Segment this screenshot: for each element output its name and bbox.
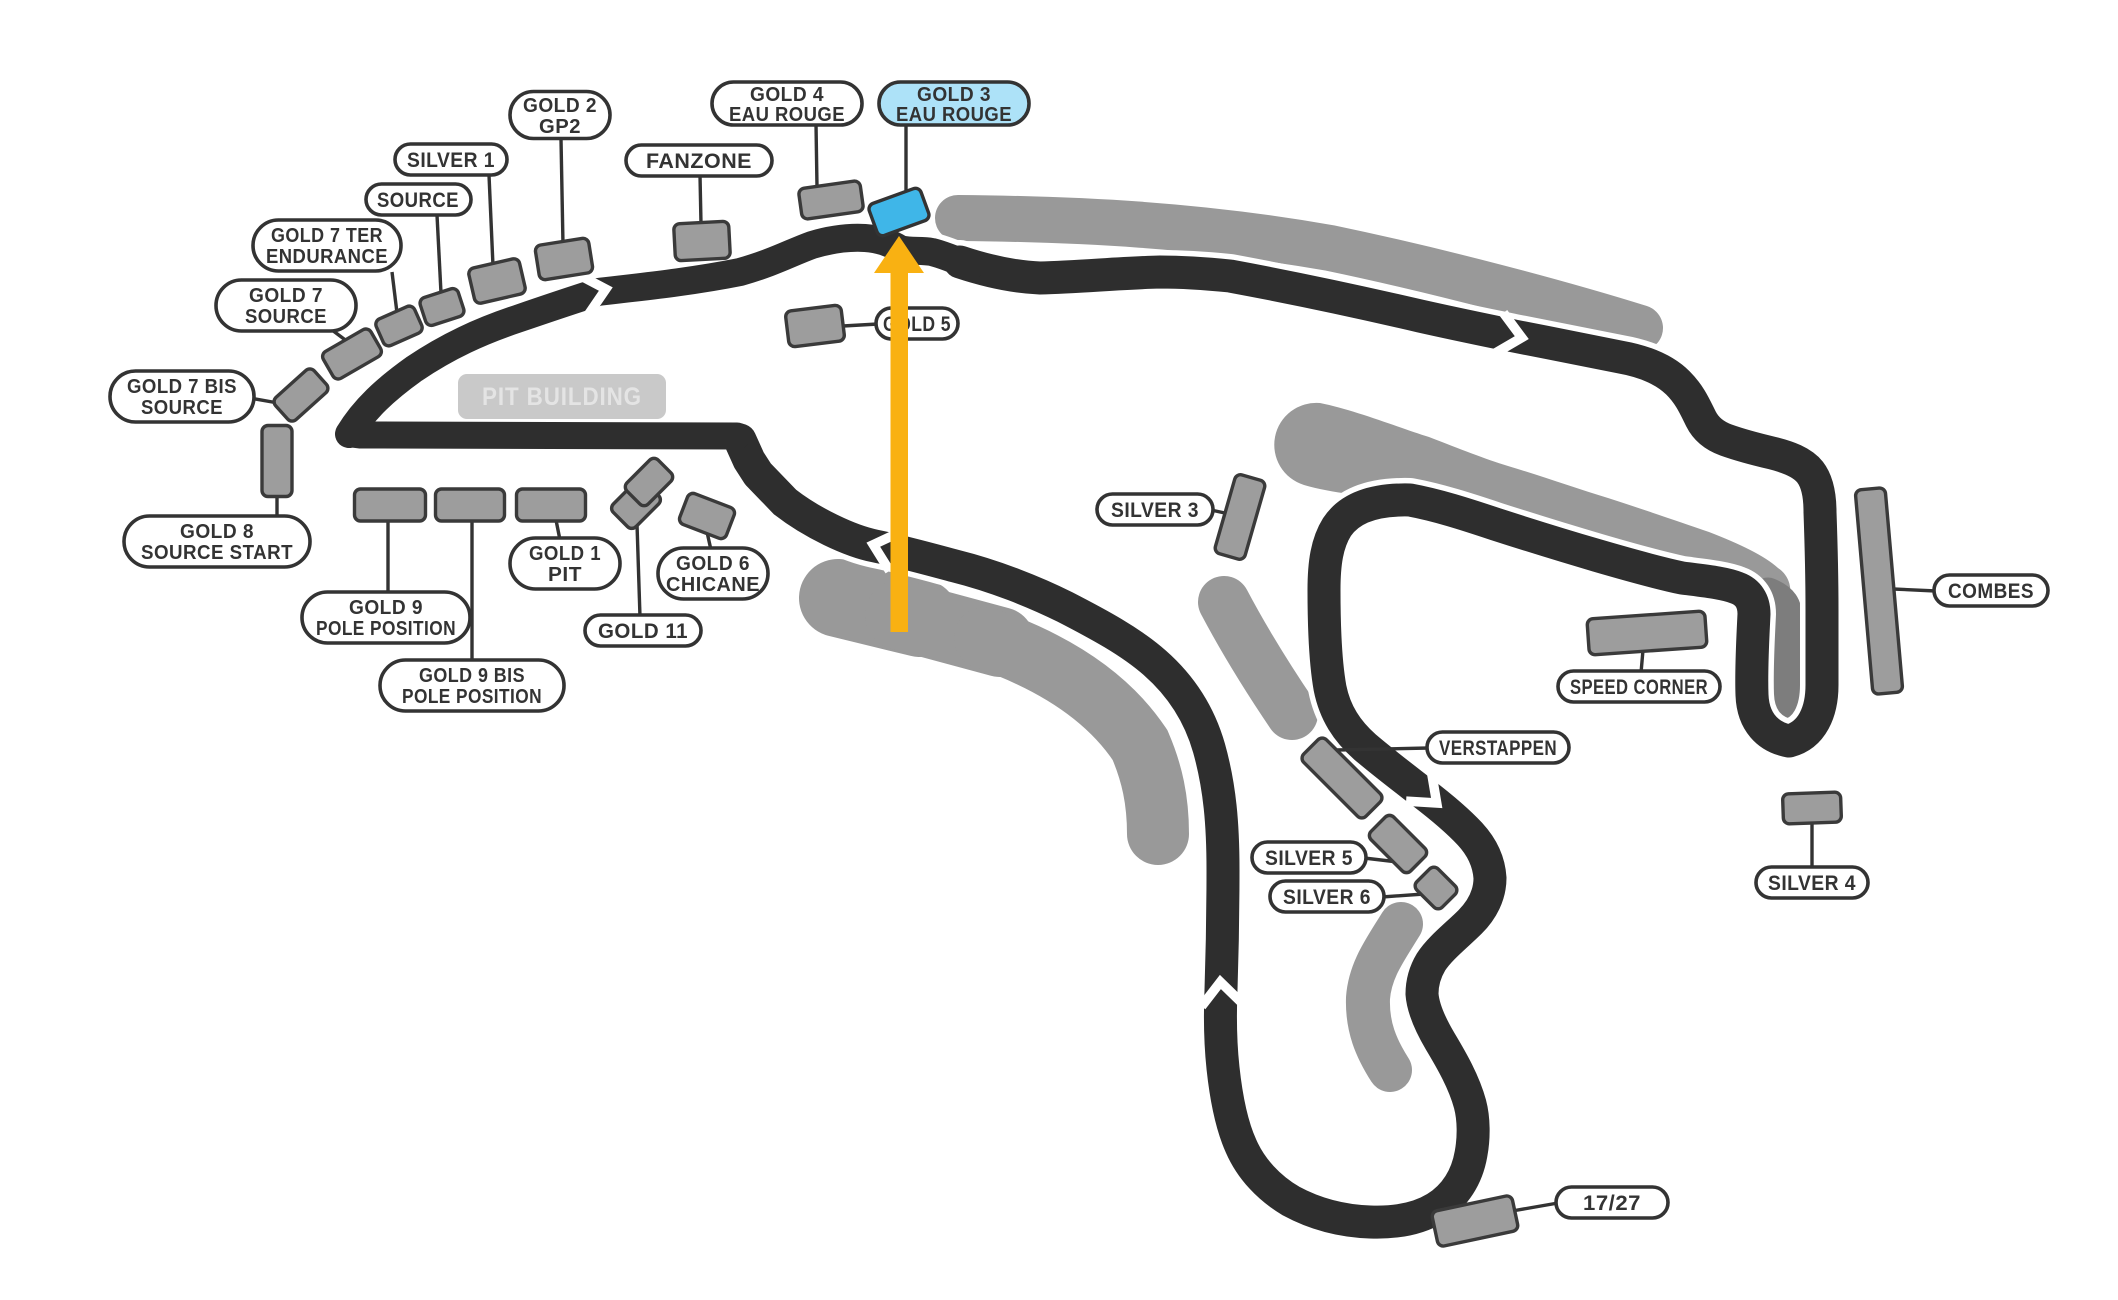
svg-text:GOLD 9 BIS: GOLD 9 BIS — [419, 665, 525, 687]
svg-text:GOLD 1: GOLD 1 — [529, 543, 601, 565]
svg-text:SILVER 1: SILVER 1 — [407, 149, 495, 172]
svg-text:FANZONE: FANZONE — [646, 150, 752, 173]
svg-text:POLE POSITION: POLE POSITION — [316, 618, 456, 640]
svg-text:SILVER 4: SILVER 4 — [1768, 872, 1856, 895]
svg-text:PIT BUILDING: PIT BUILDING — [482, 383, 642, 411]
svg-text:SILVER 3: SILVER 3 — [1111, 499, 1199, 522]
svg-text:CHICANE: CHICANE — [666, 574, 760, 596]
svg-text:SILVER 6: SILVER 6 — [1283, 886, 1371, 909]
svg-text:SOURCE: SOURCE — [141, 397, 223, 419]
svg-text:SPEED CORNER: SPEED CORNER — [1570, 676, 1708, 699]
svg-text:POLE POSITION: POLE POSITION — [402, 686, 542, 708]
svg-text:COMBES: COMBES — [1948, 580, 2034, 603]
svg-text:GOLD 3: GOLD 3 — [917, 84, 991, 106]
svg-text:EAU ROUGE: EAU ROUGE — [896, 104, 1012, 126]
svg-text:ENDURANCE: ENDURANCE — [266, 246, 388, 268]
svg-text:GOLD 7 BIS: GOLD 7 BIS — [127, 376, 237, 398]
svg-text:GOLD 8: GOLD 8 — [180, 521, 254, 543]
svg-text:GOLD 7 TER: GOLD 7 TER — [271, 225, 383, 247]
svg-text:VERSTAPPEN: VERSTAPPEN — [1439, 737, 1557, 760]
svg-text:SILVER 5: SILVER 5 — [1265, 847, 1353, 870]
svg-text:GOLD 2: GOLD 2 — [523, 95, 597, 117]
svg-text:GOLD 11: GOLD 11 — [598, 620, 688, 643]
svg-text:17/27: 17/27 — [1583, 1192, 1641, 1215]
svg-text:PIT: PIT — [548, 564, 582, 586]
svg-text:GOLD 4: GOLD 4 — [750, 84, 824, 106]
svg-text:SOURCE: SOURCE — [377, 189, 459, 212]
svg-text:SOURCE: SOURCE — [245, 306, 327, 328]
svg-text:GOLD 7: GOLD 7 — [249, 285, 323, 307]
svg-text:EAU ROUGE: EAU ROUGE — [729, 104, 845, 126]
svg-text:GOLD 9: GOLD 9 — [349, 597, 423, 619]
svg-text:GP2: GP2 — [539, 116, 581, 138]
svg-text:GOLD 6: GOLD 6 — [676, 553, 750, 575]
svg-text:SOURCE START: SOURCE START — [141, 542, 293, 564]
